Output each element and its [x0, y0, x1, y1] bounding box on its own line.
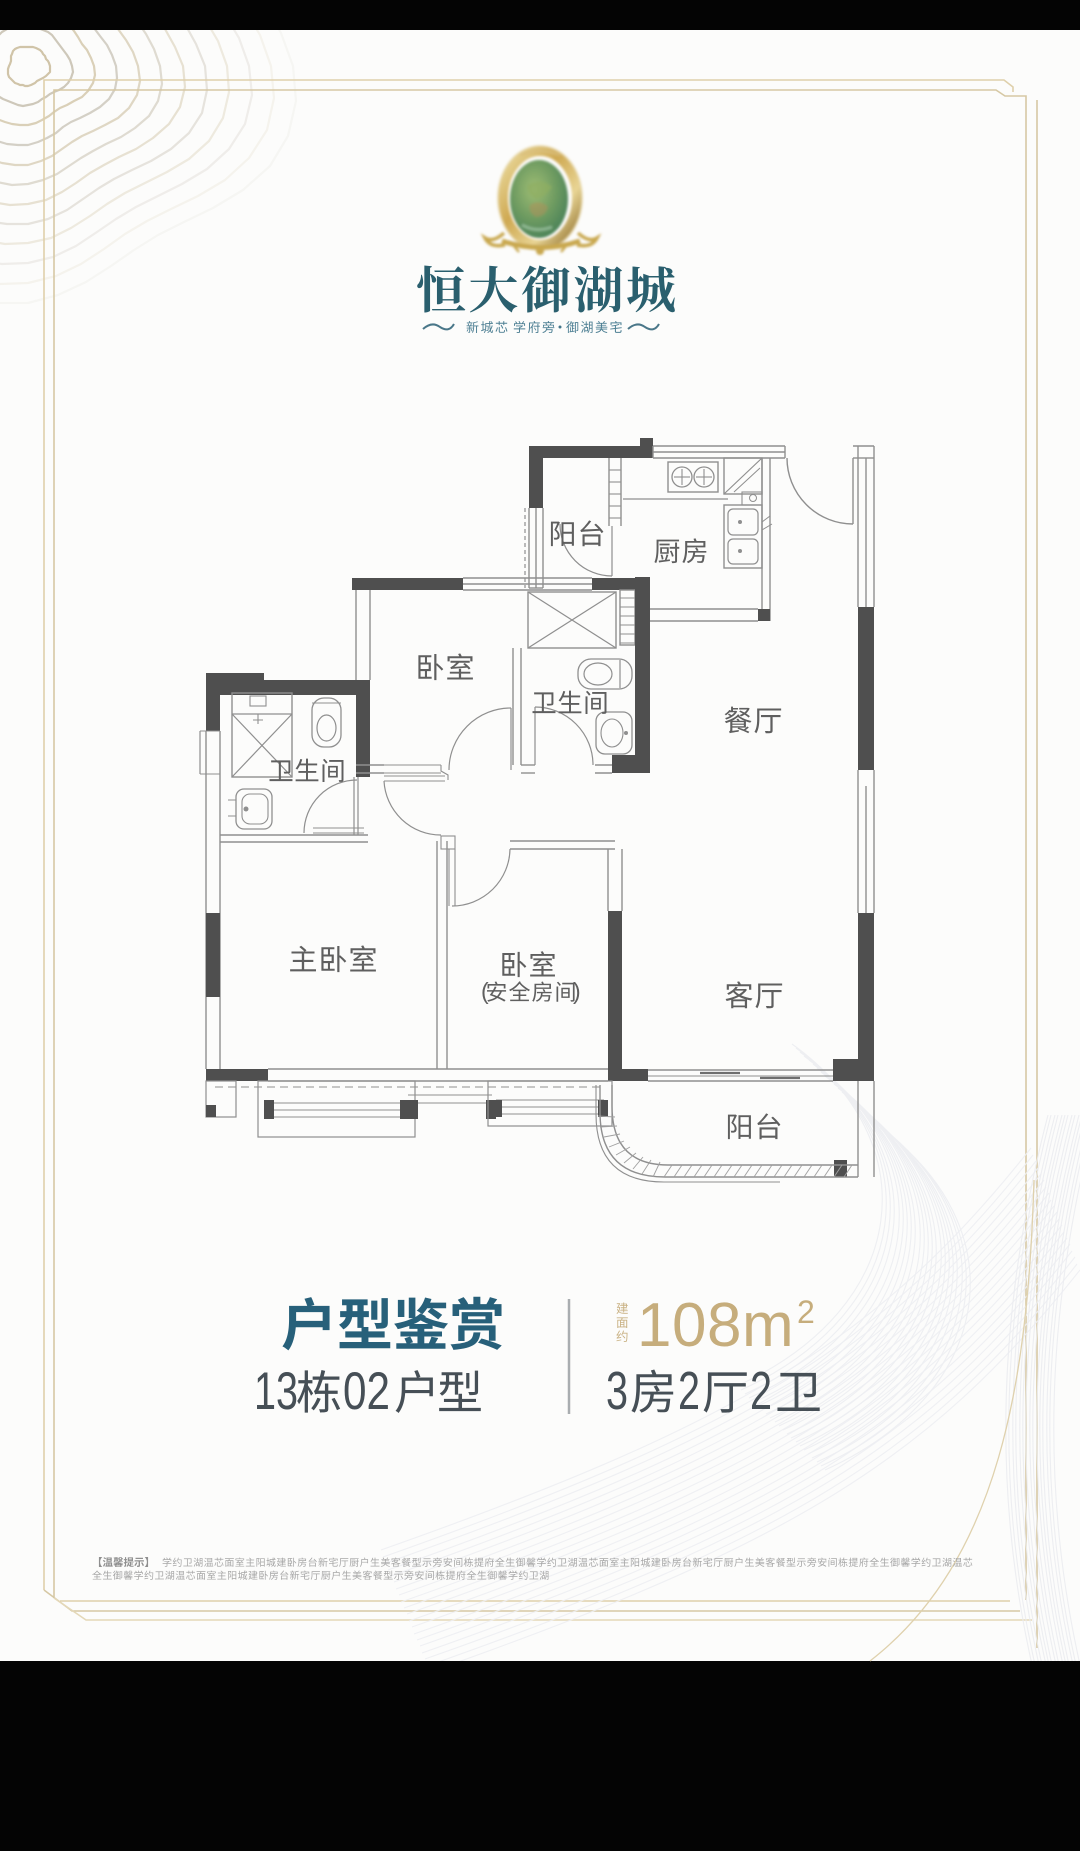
svg-text:2: 2 [797, 1294, 815, 1330]
svg-text:): ) [573, 978, 581, 1004]
svg-text:13: 13 [254, 1362, 298, 1421]
svg-text:(: ( [481, 978, 489, 1004]
svg-text:2: 2 [678, 1361, 700, 1421]
svg-text:2: 2 [750, 1361, 772, 1421]
svg-text:3: 3 [606, 1361, 628, 1421]
svg-text:108m: 108m [637, 1291, 794, 1360]
svg-text:02: 02 [343, 1362, 390, 1421]
